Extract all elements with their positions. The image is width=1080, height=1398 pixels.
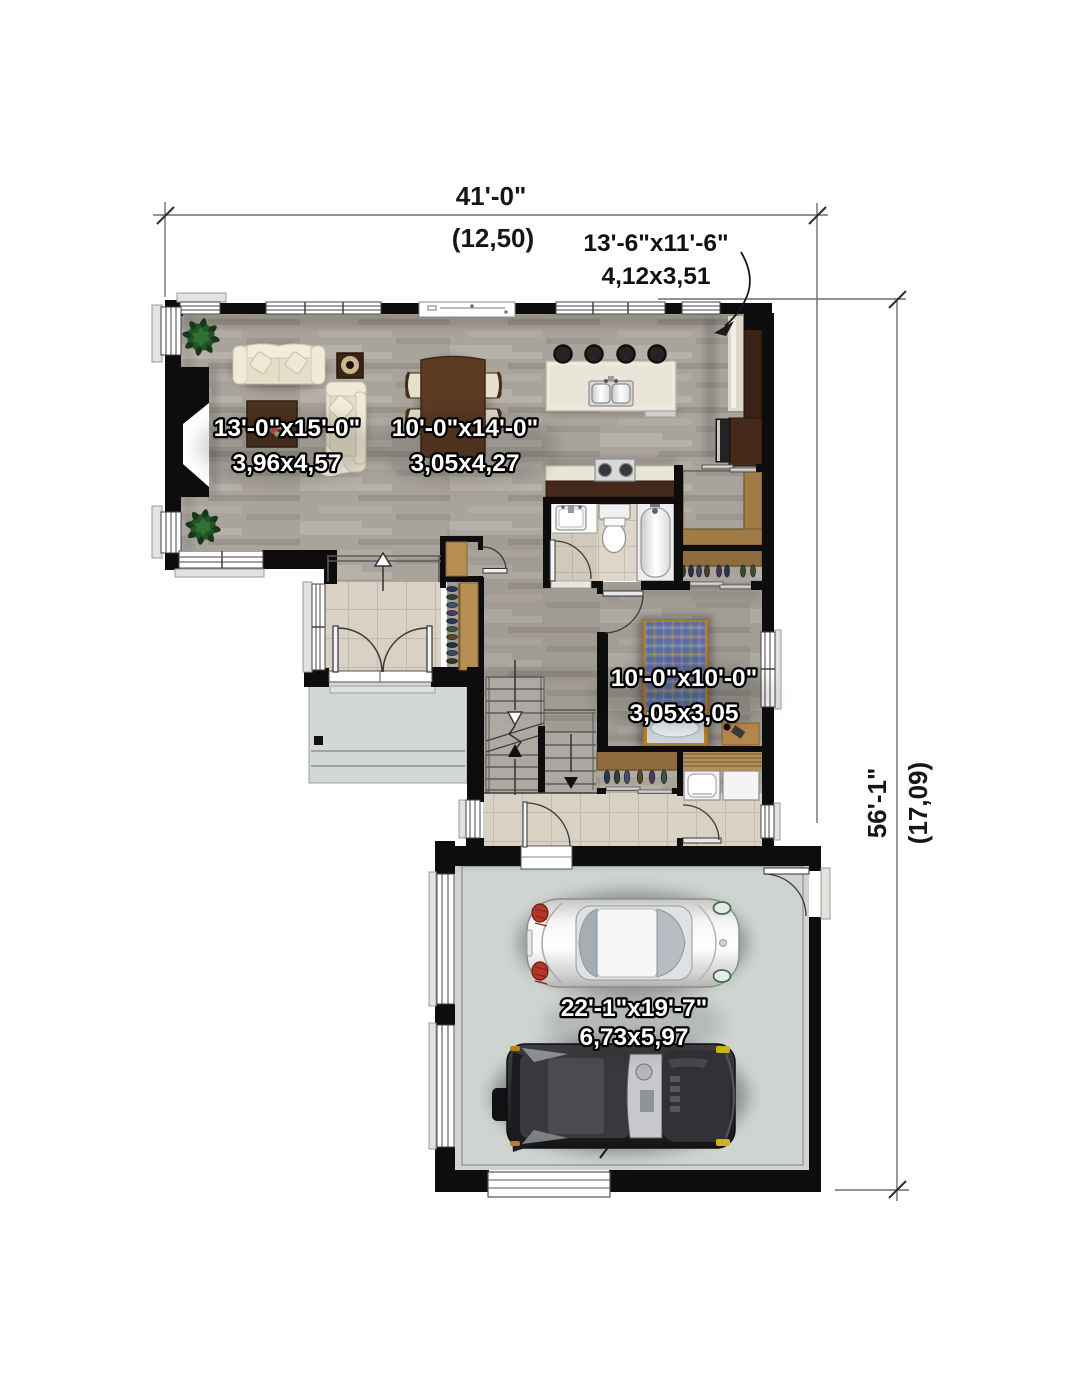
svg-text:13'-6"x11'-6": 13'-6"x11'-6" (583, 230, 728, 257)
svg-text:56'-1": 56'-1" (862, 768, 892, 839)
svg-text:3,05x3,05: 3,05x3,05 (630, 700, 739, 727)
svg-text:13'-0"x15'-0": 13'-0"x15'-0" (214, 415, 361, 442)
svg-text:3,05x4,27: 3,05x4,27 (411, 450, 520, 477)
svg-text:4,12x3,51: 4,12x3,51 (602, 263, 711, 290)
svg-text:(12,50): (12,50) (452, 223, 534, 253)
svg-text:10'-0"x10'-0": 10'-0"x10'-0" (611, 665, 758, 692)
svg-text:(17,09): (17,09) (903, 762, 933, 844)
svg-text:22'-1"x19'-7": 22'-1"x19'-7" (561, 995, 708, 1022)
svg-text:3,96x4,57: 3,96x4,57 (233, 450, 342, 477)
svg-text:10'-0"x14'-0": 10'-0"x14'-0" (392, 415, 539, 442)
svg-text:41'-0": 41'-0" (456, 181, 527, 211)
svg-text:6,73x5,97: 6,73x5,97 (580, 1024, 689, 1051)
